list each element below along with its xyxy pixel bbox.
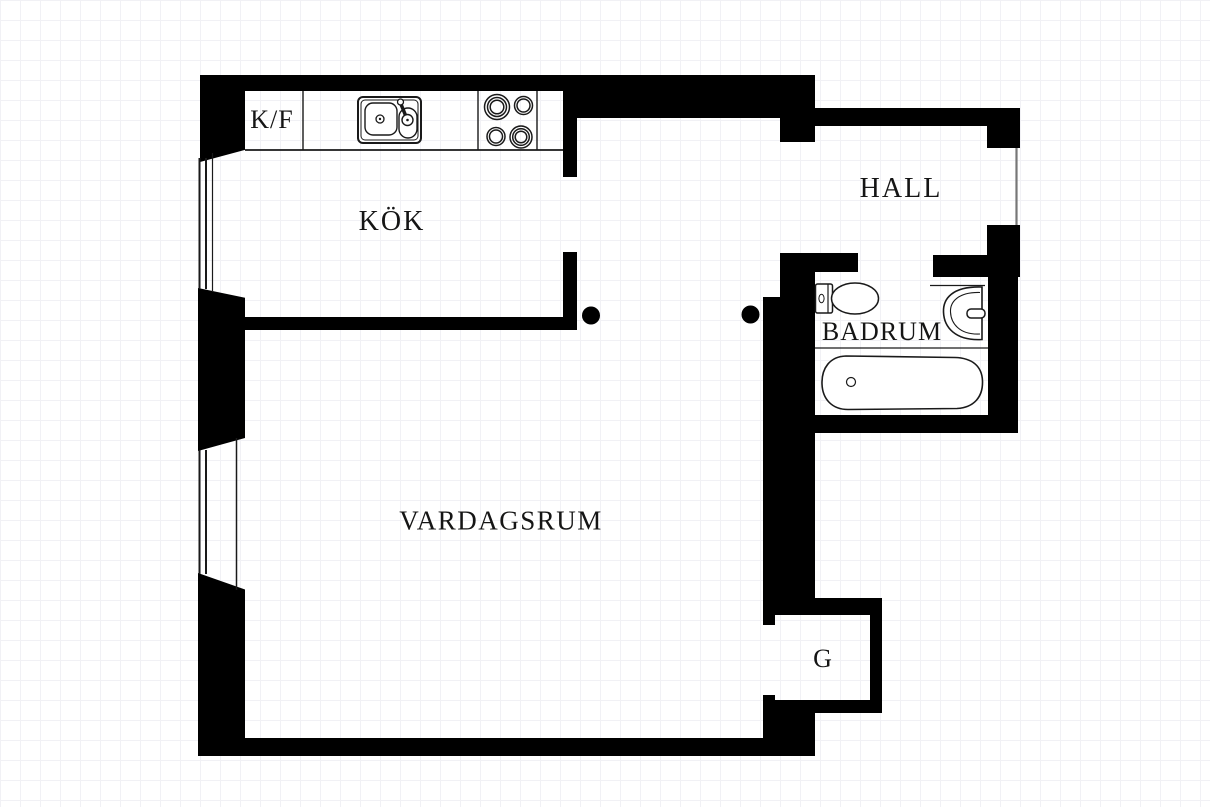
floor-plan: K/F KÖK HALL BADRUM VARDAGSRUM G	[0, 0, 1210, 807]
bathtub-icon	[815, 348, 988, 410]
stove-icon	[485, 95, 533, 149]
living-room-label: VARDAGSRUM	[399, 508, 603, 535]
door-dot-hall	[742, 306, 760, 324]
door-dot-kitchen	[582, 307, 600, 325]
window-kitchen-icon	[200, 153, 213, 292]
bathroom-label: BADRUM	[822, 319, 942, 345]
fixtures-layer	[0, 0, 1210, 807]
toilet-icon	[816, 283, 879, 314]
closet-label: G	[813, 646, 833, 672]
window-livingroom-icon	[200, 438, 237, 590]
kitchen-label: KÖK	[359, 208, 426, 236]
hall-label: HALL	[860, 175, 943, 203]
kitchen-sink-icon	[358, 97, 421, 143]
fridge-freezer-label: K/F	[250, 107, 293, 133]
